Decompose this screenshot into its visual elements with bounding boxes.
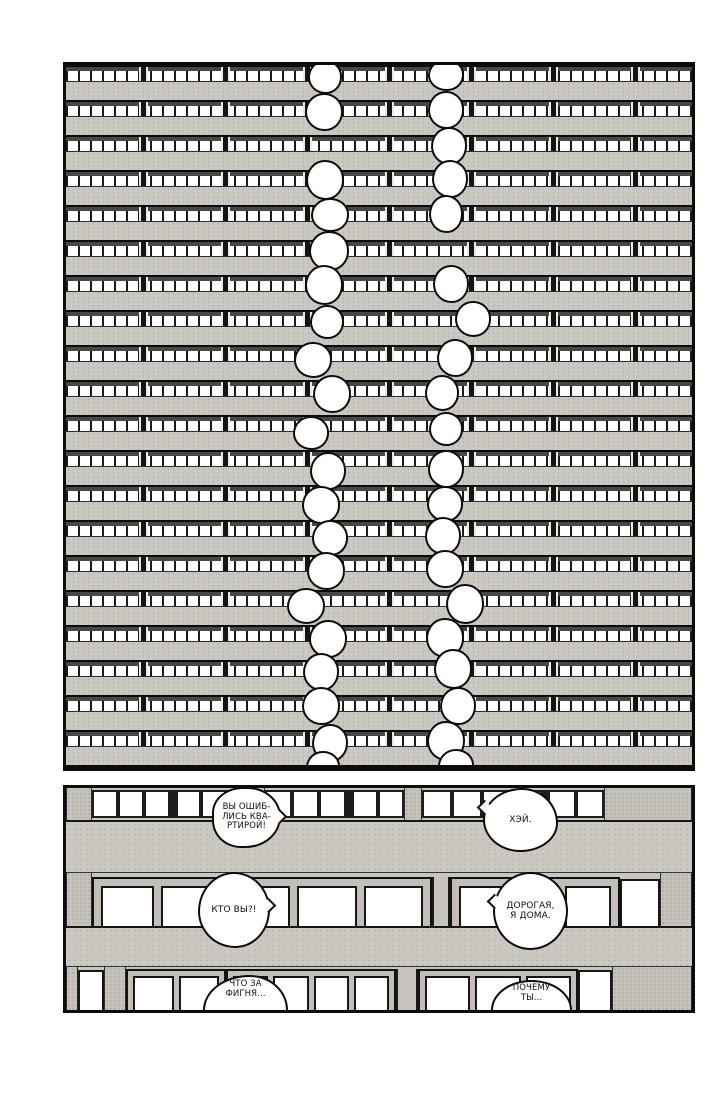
window-pane [297,886,356,926]
window [144,790,170,818]
speech-line: ХЭЙ. [509,815,531,825]
distant-speech-bubble [313,375,351,413]
distant-speech-bubble [308,62,342,94]
distant-speech-bubble [429,412,463,446]
window [292,790,319,818]
speech-line: РТИРОЙ! [227,822,266,832]
speech-line: ДОРОГАЯ, [506,901,554,911]
concrete-pillar [66,967,78,1010]
concrete-band [66,928,692,966]
window [118,790,144,818]
window [319,790,346,818]
speech-bubble-hey: ХЭЙ. [483,788,558,852]
speech-line: Я ДОМА. [510,911,551,921]
small-window-row [66,788,692,822]
distant-speech-bubble [294,342,332,378]
distant-speech-bubble [426,550,464,588]
distant-speech-bubble [440,687,476,725]
concrete-pillar [604,788,692,820]
distant-speech-bubble [429,195,463,233]
distant-speech-bubble [446,584,484,624]
concrete-pillar [66,788,92,820]
window-pane [565,886,611,926]
concrete-pillar [404,788,422,820]
window-pane [354,976,389,1010]
distant-speech-bubble [434,649,472,689]
speech-bubble-darling-im-home: ДОРОГАЯ, Я ДОМА. [493,872,568,950]
distant-speech-bubble [287,588,325,624]
building-facade-panel [63,62,695,771]
window-pane [364,886,423,926]
window [452,790,482,818]
distant-speech-bubble [428,91,464,129]
window-pane [133,976,174,1010]
speech-bubble-who-are-you: КТО ВЫ?! [198,872,270,948]
distant-speech-bubble [432,160,468,198]
window [578,970,612,1010]
distant-speech-bubble [455,301,491,337]
distant-speech-bubble [293,416,329,450]
window [352,790,378,818]
distant-speech-bubble [305,265,343,305]
closeup-floor-rows [66,788,692,1010]
speech-line: КТО ВЫ?! [211,905,256,915]
distant-speech-bubble [425,375,459,411]
window [176,790,201,818]
distant-speech-bubble [433,265,469,303]
concrete-pillar [66,873,92,926]
pillar-divider [396,969,418,1010]
pillar-divider [432,877,450,926]
distant-speech-bubble [302,486,340,524]
distant-bubbles-layer [66,65,692,765]
distant-speech-bubble [310,452,346,490]
distant-speech-bubble [309,620,347,658]
window [78,970,104,1010]
large-window-row [66,872,692,928]
window [422,790,452,818]
distant-speech-bubble [311,198,349,232]
window-pane [425,976,470,1010]
distant-speech-bubble [302,687,340,725]
concrete-pillar [104,967,126,1010]
concrete-band [66,822,692,872]
facade-closeup-panel: ВЫ ОШИБ- ЛИСЬ КВА- РТИРОЙ! ХЭЙ. КТО ВЫ?!… [63,785,695,1013]
distant-speech-bubble [428,450,464,488]
distant-speech-bubble [428,62,464,91]
window [92,790,118,818]
distant-speech-bubble [303,653,339,691]
concrete-pillar [612,967,692,1010]
large-window-row [66,966,692,1010]
window-pane [101,886,154,926]
distant-speech-bubble [438,749,474,771]
distant-speech-bubble [310,305,344,339]
distant-speech-bubble [307,552,345,590]
concrete-pillar [660,873,692,926]
speech-line: ФИГНЯ... [225,990,265,1000]
speech-line: ТЫ... [521,994,542,1004]
manga-page: ВЫ ОШИБ- ЛИСЬ КВА- РТИРОЙ! ХЭЙ. КТО ВЫ?!… [0,0,728,1100]
distant-speech-bubble [312,520,348,556]
window [620,879,660,926]
window-pane [314,976,349,1010]
distant-speech-bubble [305,93,343,131]
distant-speech-bubble [306,160,344,200]
window [378,790,404,818]
window [576,790,604,818]
distant-speech-bubble [437,339,473,377]
